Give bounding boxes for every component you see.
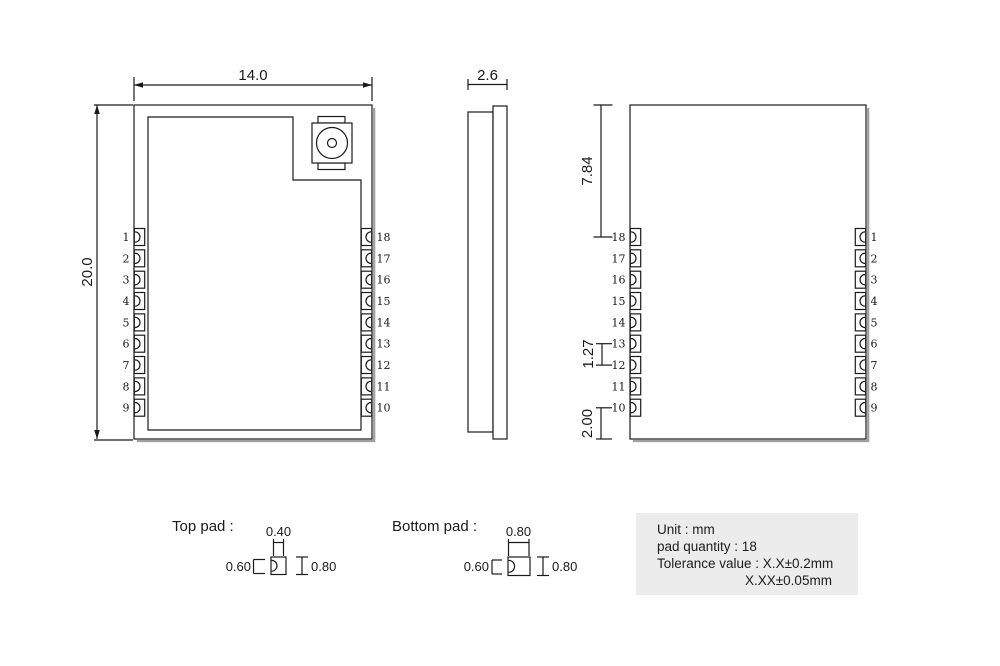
front-height-label: 20.0 (79, 257, 96, 286)
back-left-pads: 181716151413121110 (612, 229, 641, 417)
pin-number: 5 (123, 316, 130, 329)
top-pad-height-label: 0.60 (226, 559, 251, 574)
pin-number: 14 (377, 316, 391, 329)
back-pcb-outline (630, 105, 866, 439)
pin-number: 13 (612, 338, 626, 351)
dimension-drawing: 123456789 181716151413121110 14.0 20.0 (0, 0, 1000, 666)
back-view: 181716151413121110 123456789 7.84 1.27 (579, 105, 878, 441)
back-bottom-offset-dimension: 2.00 (579, 408, 612, 439)
pin-number: 7 (123, 359, 130, 372)
pin-number: 7 (871, 359, 878, 372)
pin-number: 17 (612, 252, 626, 265)
ipex-body (312, 123, 352, 163)
info-box: Unit : mm pad quantity : 18 Tolerance va… (636, 513, 858, 595)
pin-number: 2 (871, 252, 878, 265)
bottom-pad-shape (508, 557, 530, 576)
info-pad-quantity: pad quantity : 18 (636, 538, 858, 555)
pin-number: 4 (871, 295, 878, 308)
pin-number: 8 (871, 380, 878, 393)
pin-number: 3 (123, 274, 130, 287)
side-shield-outline (468, 112, 493, 432)
pin-number: 9 (871, 402, 878, 415)
side-thickness-dimension: 2.6 (468, 67, 507, 90)
front-width-label: 14.0 (238, 67, 267, 84)
top-pad-notch-width-label: 0.40 (266, 524, 291, 539)
pin-number: 18 (612, 231, 626, 244)
back-top-offset-label: 7.84 (579, 156, 596, 185)
top-pad-detail: Top pad : 0.40 0.60 0.80 (172, 518, 336, 575)
front-width-dimension: 14.0 (134, 67, 372, 101)
back-bottom-offset-label: 2.00 (579, 409, 596, 438)
info-tolerance-2: X.XX±0.05mm (636, 572, 858, 589)
back-pitch-label: 1.27 (580, 339, 597, 368)
pin-number: 17 (377, 252, 391, 265)
front-view: 123456789 181716151413121110 14.0 20.0 (79, 67, 391, 441)
bottom-pad-height-label: 0.60 (464, 559, 489, 574)
pin-number: 1 (123, 231, 130, 244)
pin-number: 13 (377, 338, 391, 351)
pin-number: 8 (123, 380, 130, 393)
ipex-top-flange (318, 117, 345, 124)
back-pitch-dimension: 1.27 (580, 339, 612, 368)
pin-number: 18 (377, 231, 391, 244)
bottom-pad-notch-width-label: 0.80 (506, 524, 531, 539)
bottom-pad-detail: Bottom pad : 0.80 0.60 0.80 (392, 518, 577, 576)
info-tolerance: Tolerance value : X.X±0.2mm (636, 555, 858, 572)
side-thickness-label: 2.6 (477, 67, 498, 84)
pin-number: 16 (612, 274, 626, 287)
pin-number: 4 (123, 295, 130, 308)
pin-number: 1 (871, 231, 878, 244)
side-view: 2.6 (468, 67, 507, 439)
pin-number: 9 (123, 402, 130, 415)
pin-number: 15 (612, 295, 626, 308)
pin-number: 11 (612, 380, 626, 393)
pin-number: 12 (612, 359, 626, 372)
info-unit: Unit : mm (636, 521, 858, 538)
arrow-up-icon (94, 105, 100, 114)
side-pcb-outline (493, 106, 507, 439)
pin-number: 2 (123, 252, 130, 265)
pin-number: 10 (377, 402, 391, 415)
pin-number: 15 (377, 295, 391, 308)
bottom-pad-width-label: 0.80 (552, 559, 577, 574)
ipex-bottom-flange (318, 163, 345, 170)
ipex-connector-icon (312, 117, 352, 170)
pin-number: 5 (871, 316, 878, 329)
top-pad-title: Top pad : (172, 518, 234, 535)
top-pad-width-label: 0.80 (311, 559, 336, 574)
pin-number: 6 (123, 338, 130, 351)
front-right-pads: 181716151413121110 (361, 229, 390, 417)
pin-number: 16 (377, 274, 391, 287)
bottom-pad-title: Bottom pad : (392, 518, 477, 535)
arrow-right-icon (363, 82, 372, 87)
pin-number: 11 (377, 380, 391, 393)
pin-number: 12 (377, 359, 391, 372)
pin-number: 6 (871, 338, 878, 351)
back-top-offset-dimension: 7.84 (579, 105, 613, 237)
pin-number: 3 (871, 274, 878, 287)
top-pad-shape (271, 557, 286, 575)
arrow-down-icon (94, 430, 100, 439)
arrow-left-icon (134, 82, 143, 87)
pin-number: 14 (612, 316, 626, 329)
pin-number: 10 (612, 402, 626, 415)
